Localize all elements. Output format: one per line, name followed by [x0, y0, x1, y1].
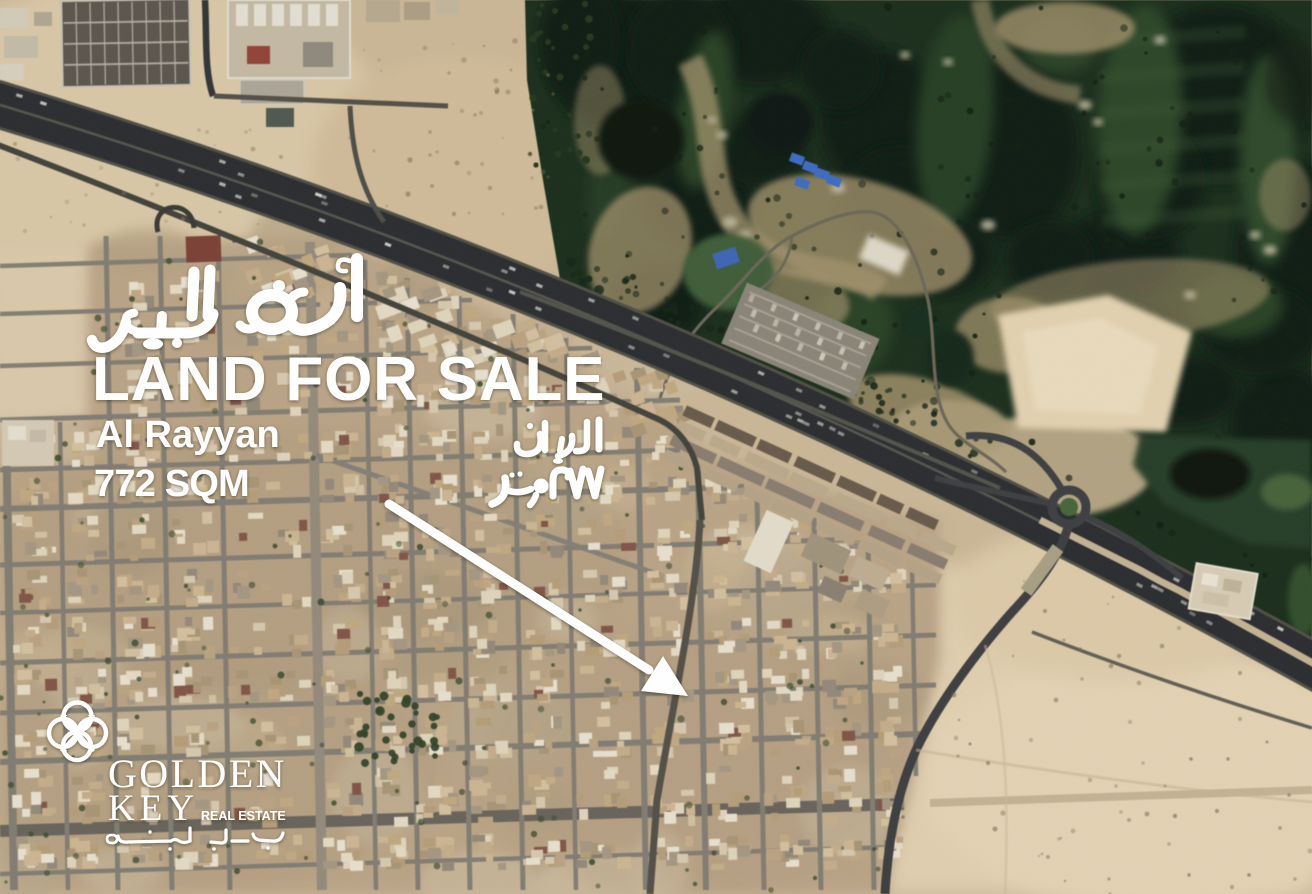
svg-text:KEY: KEY	[108, 788, 199, 829]
svg-text:Al Rayyan: Al Rayyan	[96, 414, 280, 456]
svg-text:772 SQM: 772 SQM	[94, 463, 249, 505]
svg-text:LAND FOR SALE: LAND FOR SALE	[92, 345, 605, 414]
svg-text:REAL ESTATE: REAL ESTATE	[201, 809, 286, 823]
